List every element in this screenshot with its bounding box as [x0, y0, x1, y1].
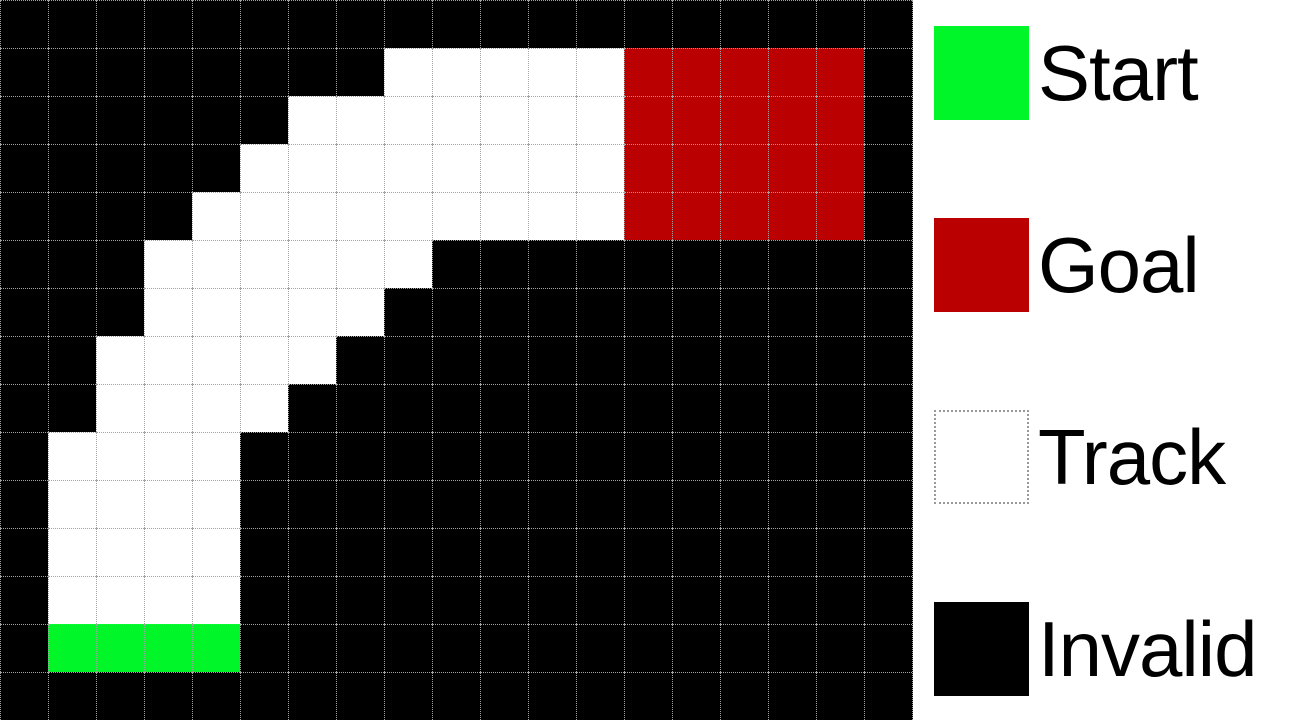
- grid-cell-invalid: [96, 240, 144, 288]
- grid-cell-invalid: [336, 336, 384, 384]
- grid-cell-invalid: [720, 240, 768, 288]
- grid-cell-track: [48, 480, 96, 528]
- grid-cell-invalid: [528, 288, 576, 336]
- grid-cell-invalid: [576, 624, 624, 672]
- grid-cell-invalid: [432, 528, 480, 576]
- grid-cell-invalid: [576, 384, 624, 432]
- grid-cell-track: [384, 48, 432, 96]
- grid-cell-goal: [768, 48, 816, 96]
- grid-cell-invalid: [816, 240, 864, 288]
- grid-cell-goal: [816, 192, 864, 240]
- grid-cell-goal: [672, 48, 720, 96]
- grid-cell-track: [240, 240, 288, 288]
- grid-cell-track: [480, 96, 528, 144]
- grid-cell-invalid: [576, 672, 624, 720]
- grid-cell-invalid: [288, 48, 336, 96]
- grid-cell-invalid: [768, 240, 816, 288]
- grid-cell-invalid: [480, 288, 528, 336]
- grid-cell-invalid: [480, 0, 528, 48]
- grid-cell-invalid: [432, 288, 480, 336]
- grid-cell-invalid: [624, 624, 672, 672]
- grid-cell-invalid: [672, 576, 720, 624]
- grid-cell-invalid: [672, 480, 720, 528]
- grid-cell-invalid: [240, 48, 288, 96]
- grid-cell-invalid: [768, 384, 816, 432]
- grid-cell-invalid: [576, 576, 624, 624]
- grid-cell-track: [288, 192, 336, 240]
- grid-cell-goal: [624, 144, 672, 192]
- grid-cell-track: [288, 144, 336, 192]
- grid-cell-invalid: [480, 624, 528, 672]
- grid-cell-invalid: [432, 480, 480, 528]
- grid-cell-invalid: [768, 624, 816, 672]
- grid-cell-track: [240, 336, 288, 384]
- grid-cell-track: [240, 288, 288, 336]
- grid-cell-track: [432, 192, 480, 240]
- grid-cell-invalid: [672, 384, 720, 432]
- grid-cell-invalid: [192, 144, 240, 192]
- grid-cell-invalid: [576, 0, 624, 48]
- grid-cell-invalid: [192, 0, 240, 48]
- goal-swatch-icon: [934, 218, 1029, 312]
- grid-cell-invalid: [432, 624, 480, 672]
- grid-cell-track: [432, 48, 480, 96]
- grid-cell-invalid: [240, 672, 288, 720]
- grid-cell-invalid: [0, 192, 48, 240]
- grid-cell-invalid: [336, 480, 384, 528]
- grid-cell-track: [144, 432, 192, 480]
- grid-cell-invalid: [288, 528, 336, 576]
- grid-cell-invalid: [48, 192, 96, 240]
- grid-cell-invalid: [576, 288, 624, 336]
- grid-cell-invalid: [672, 288, 720, 336]
- legend-label-goal: Goal: [1038, 226, 1199, 304]
- grid-cell-invalid: [288, 384, 336, 432]
- grid-cell-invalid: [864, 48, 912, 96]
- grid-cell-track: [144, 384, 192, 432]
- grid-cell-track: [96, 432, 144, 480]
- grid-cell-track: [240, 144, 288, 192]
- grid-cell-invalid: [192, 48, 240, 96]
- grid-cell-invalid: [864, 144, 912, 192]
- grid-cell-invalid: [816, 480, 864, 528]
- grid-cell-invalid: [768, 576, 816, 624]
- legend-label-invalid: Invalid: [1038, 610, 1256, 688]
- grid-cell-invalid: [240, 480, 288, 528]
- grid-cell-track: [576, 192, 624, 240]
- grid-cell-invalid: [576, 336, 624, 384]
- grid-cell-track: [144, 336, 192, 384]
- grid-cell-invalid: [240, 432, 288, 480]
- grid-cell-goal: [720, 96, 768, 144]
- grid-cell-invalid: [0, 0, 48, 48]
- grid-cell-goal: [720, 48, 768, 96]
- legend-item-track: Track: [934, 410, 1225, 504]
- grid-cell-invalid: [720, 432, 768, 480]
- grid-cell-invalid: [336, 624, 384, 672]
- grid-cell-goal: [768, 96, 816, 144]
- grid-cell-invalid: [864, 288, 912, 336]
- grid-cell-invalid: [48, 144, 96, 192]
- grid-cell-goal: [672, 192, 720, 240]
- grid-cell-track: [528, 144, 576, 192]
- grid-cell-track: [480, 144, 528, 192]
- grid-cell-goal: [816, 48, 864, 96]
- grid-cell-invalid: [672, 432, 720, 480]
- grid-cell-track: [384, 96, 432, 144]
- grid-cell-track: [576, 48, 624, 96]
- grid-cell-invalid: [48, 384, 96, 432]
- legend-item-start: Start: [934, 26, 1198, 120]
- grid-cell-invalid: [432, 432, 480, 480]
- grid-cell-track: [336, 240, 384, 288]
- grid-cell-invalid: [384, 0, 432, 48]
- grid-cell-invalid: [480, 240, 528, 288]
- grid-cell-invalid: [864, 528, 912, 576]
- grid-cell-track: [288, 336, 336, 384]
- grid-cell-invalid: [528, 672, 576, 720]
- grid-cell-invalid: [96, 48, 144, 96]
- grid-cell-invalid: [48, 336, 96, 384]
- grid-cell-invalid: [144, 144, 192, 192]
- grid-cell-invalid: [864, 384, 912, 432]
- grid-cell-track: [240, 384, 288, 432]
- grid-cell-track: [96, 384, 144, 432]
- grid-cell-invalid: [48, 96, 96, 144]
- grid-cell-invalid: [624, 0, 672, 48]
- grid-cell-invalid: [768, 480, 816, 528]
- grid-cell-invalid: [480, 528, 528, 576]
- grid-cell-track: [576, 144, 624, 192]
- grid-cell-invalid: [768, 288, 816, 336]
- grid-cell-invalid: [384, 336, 432, 384]
- legend: Start Goal Track Invalid: [913, 0, 1302, 720]
- grid-cell-invalid: [0, 528, 48, 576]
- grid-cell-invalid: [288, 672, 336, 720]
- grid-cell-invalid: [816, 624, 864, 672]
- grid-cell-invalid: [864, 336, 912, 384]
- grid-cell-invalid: [720, 336, 768, 384]
- grid-cell-track: [480, 192, 528, 240]
- grid-cell-track: [528, 96, 576, 144]
- grid-cell-invalid: [0, 96, 48, 144]
- grid-cell-track: [48, 432, 96, 480]
- grid-cell-invalid: [816, 336, 864, 384]
- grid-cell-invalid: [336, 48, 384, 96]
- grid-cell-invalid: [480, 384, 528, 432]
- grid-cell-track: [96, 336, 144, 384]
- grid-cell-invalid: [816, 384, 864, 432]
- grid-cell-invalid: [144, 192, 192, 240]
- grid-cell-invalid: [720, 480, 768, 528]
- grid-cell-invalid: [864, 624, 912, 672]
- grid-cell-invalid: [48, 240, 96, 288]
- grid-cell-invalid: [432, 0, 480, 48]
- grid-cell-invalid: [144, 96, 192, 144]
- grid-cell-track: [384, 144, 432, 192]
- grid-cell-invalid: [480, 576, 528, 624]
- grid-cell-invalid: [864, 192, 912, 240]
- grid-cell-invalid: [0, 384, 48, 432]
- grid-cell-invalid: [720, 528, 768, 576]
- grid-cell-invalid: [720, 384, 768, 432]
- grid-cell-invalid: [384, 288, 432, 336]
- grid-cell-invalid: [672, 672, 720, 720]
- grid-cell-invalid: [528, 0, 576, 48]
- grid-cell-invalid: [0, 48, 48, 96]
- grid-cell-goal: [768, 144, 816, 192]
- legend-item-goal: Goal: [934, 218, 1199, 312]
- grid-cell-track: [144, 528, 192, 576]
- grid-cell-track: [96, 480, 144, 528]
- grid-cell-invalid: [624, 480, 672, 528]
- grid-cell-invalid: [624, 576, 672, 624]
- grid-cell-invalid: [624, 528, 672, 576]
- grid-cell-invalid: [768, 0, 816, 48]
- grid-cell-track: [432, 96, 480, 144]
- grid-cell-track: [288, 288, 336, 336]
- grid-cell-invalid: [192, 96, 240, 144]
- grid-cell-invalid: [528, 240, 576, 288]
- grid-cell-invalid: [720, 672, 768, 720]
- invalid-swatch-icon: [934, 602, 1029, 696]
- grid-cell-invalid: [288, 480, 336, 528]
- grid-cell-invalid: [672, 336, 720, 384]
- racetrack-grid: [0, 0, 913, 720]
- grid-cell-goal: [768, 192, 816, 240]
- grid-cell-invalid: [0, 144, 48, 192]
- grid-cell-invalid: [0, 624, 48, 672]
- grid-cell-invalid: [48, 672, 96, 720]
- grid-cell-track: [192, 336, 240, 384]
- grid-cell-invalid: [0, 336, 48, 384]
- grid-cell-invalid: [240, 576, 288, 624]
- grid-cell-invalid: [624, 384, 672, 432]
- grid-cell-invalid: [816, 288, 864, 336]
- grid-cell-goal: [624, 192, 672, 240]
- grid-cell-invalid: [96, 288, 144, 336]
- grid-cell-invalid: [864, 480, 912, 528]
- grid-cell-track: [288, 240, 336, 288]
- grid-cell-invalid: [672, 0, 720, 48]
- grid-cell-invalid: [384, 672, 432, 720]
- grid-cell-invalid: [48, 288, 96, 336]
- grid-cell-goal: [720, 144, 768, 192]
- grid-cell-invalid: [288, 576, 336, 624]
- grid-cell-invalid: [96, 192, 144, 240]
- grid-cell-invalid: [816, 576, 864, 624]
- grid-cell-invalid: [864, 0, 912, 48]
- grid-cell-track: [384, 192, 432, 240]
- grid-cell-track: [480, 48, 528, 96]
- grid-cell-invalid: [528, 624, 576, 672]
- grid-cell-invalid: [0, 288, 48, 336]
- grid-cell-invalid: [0, 432, 48, 480]
- grid-cell-track: [192, 288, 240, 336]
- grid-cell-track: [48, 576, 96, 624]
- grid-cell-start: [48, 624, 96, 672]
- grid-cell-invalid: [480, 336, 528, 384]
- grid-cell-invalid: [96, 96, 144, 144]
- grid-cell-invalid: [864, 240, 912, 288]
- grid-cell-invalid: [672, 624, 720, 672]
- grid-cell-invalid: [528, 576, 576, 624]
- grid-cell-invalid: [240, 96, 288, 144]
- grid-cell-invalid: [384, 576, 432, 624]
- racetrack-figure: Start Goal Track Invalid: [0, 0, 1302, 720]
- grid-cell-invalid: [384, 528, 432, 576]
- grid-cell-invalid: [384, 384, 432, 432]
- grid-cell-track: [384, 240, 432, 288]
- grid-cell-invalid: [288, 432, 336, 480]
- grid-cell-invalid: [864, 96, 912, 144]
- grid-cell-invalid: [624, 240, 672, 288]
- grid-cell-start: [96, 624, 144, 672]
- grid-cell-track: [192, 192, 240, 240]
- grid-cell-invalid: [768, 336, 816, 384]
- grid-cell-invalid: [0, 576, 48, 624]
- grid-cell-invalid: [624, 672, 672, 720]
- grid-cell-track: [96, 528, 144, 576]
- grid-cell-invalid: [336, 576, 384, 624]
- grid-cell-track: [144, 288, 192, 336]
- grid-cell-goal: [816, 144, 864, 192]
- grid-cell-invalid: [720, 0, 768, 48]
- grid-cell-invalid: [432, 384, 480, 432]
- grid-cell-invalid: [144, 0, 192, 48]
- grid-cell-invalid: [576, 240, 624, 288]
- grid-cell-invalid: [816, 0, 864, 48]
- grid-cell-invalid: [432, 336, 480, 384]
- grid-cell-track: [144, 576, 192, 624]
- legend-item-invalid: Invalid: [934, 602, 1256, 696]
- grid-cell-invalid: [96, 144, 144, 192]
- grid-cell-invalid: [336, 672, 384, 720]
- grid-cell-track: [432, 144, 480, 192]
- start-swatch-icon: [934, 26, 1029, 120]
- grid-cell-invalid: [528, 480, 576, 528]
- grid-cell-invalid: [336, 432, 384, 480]
- grid-cell-invalid: [144, 48, 192, 96]
- grid-cell-invalid: [384, 624, 432, 672]
- grid-cell-invalid: [432, 240, 480, 288]
- grid-cell-invalid: [576, 480, 624, 528]
- legend-label-track: Track: [1038, 418, 1225, 496]
- grid-cell-invalid: [720, 288, 768, 336]
- grid-cell-invalid: [48, 0, 96, 48]
- grid-cell-invalid: [768, 528, 816, 576]
- grid-cell-track: [528, 48, 576, 96]
- grid-cell-invalid: [720, 576, 768, 624]
- grid-cell-invalid: [432, 576, 480, 624]
- grid-cell-invalid: [240, 0, 288, 48]
- grid-cell-invalid: [816, 672, 864, 720]
- grid-cell-invalid: [384, 480, 432, 528]
- grid-cell-invalid: [432, 672, 480, 720]
- grid-cell-goal: [624, 48, 672, 96]
- grid-cell-invalid: [48, 48, 96, 96]
- grid-cell-invalid: [336, 0, 384, 48]
- grid-cell-goal: [672, 96, 720, 144]
- grid-cell-invalid: [816, 528, 864, 576]
- grid-cell-invalid: [528, 432, 576, 480]
- grid-cell-invalid: [336, 384, 384, 432]
- grid-cell-invalid: [576, 528, 624, 576]
- grid-cell-invalid: [384, 432, 432, 480]
- grid-cell-invalid: [576, 432, 624, 480]
- grid-cell-invalid: [192, 672, 240, 720]
- grid-cell-track: [576, 96, 624, 144]
- grid-cell-track: [144, 240, 192, 288]
- grid-cell-track: [192, 576, 240, 624]
- grid-cell-track: [192, 432, 240, 480]
- grid-cell-track: [192, 480, 240, 528]
- grid-cell-track: [192, 240, 240, 288]
- grid-cell-invalid: [0, 240, 48, 288]
- grid-cell-invalid: [480, 432, 528, 480]
- grid-cell-track: [288, 96, 336, 144]
- grid-cell-invalid: [720, 624, 768, 672]
- grid-cell-invalid: [768, 432, 816, 480]
- grid-cell-goal: [720, 192, 768, 240]
- grid-cell-invalid: [144, 672, 192, 720]
- grid-cell-invalid: [624, 336, 672, 384]
- grid-cell-invalid: [528, 384, 576, 432]
- grid-cell-invalid: [0, 672, 48, 720]
- grid-cell-invalid: [0, 480, 48, 528]
- grid-cell-track: [192, 384, 240, 432]
- grid-cell-invalid: [480, 672, 528, 720]
- grid-cell-invalid: [624, 432, 672, 480]
- grid-cell-invalid: [624, 288, 672, 336]
- grid-cell-invalid: [480, 480, 528, 528]
- grid-cell-invalid: [864, 576, 912, 624]
- grid-cell-invalid: [240, 624, 288, 672]
- grid-cell-track: [336, 192, 384, 240]
- track-swatch-icon: [934, 410, 1029, 504]
- grid-cell-track: [96, 576, 144, 624]
- grid-cell-invalid: [864, 672, 912, 720]
- grid-cell-invalid: [96, 0, 144, 48]
- grid-cell-invalid: [672, 528, 720, 576]
- grid-cell-track: [528, 192, 576, 240]
- grid-cell-invalid: [768, 672, 816, 720]
- grid-cell-invalid: [240, 528, 288, 576]
- grid-cell-invalid: [336, 528, 384, 576]
- grid-cell-track: [336, 144, 384, 192]
- grid-cell-track: [48, 528, 96, 576]
- grid-cell-invalid: [528, 528, 576, 576]
- grid-cell-invalid: [288, 624, 336, 672]
- grid-cell-track: [336, 288, 384, 336]
- grid-cell-goal: [672, 144, 720, 192]
- grid-cell-invalid: [528, 336, 576, 384]
- grid-cell-invalid: [96, 672, 144, 720]
- grid-cell-start: [144, 624, 192, 672]
- grid-cell-invalid: [672, 240, 720, 288]
- grid-cell-track: [144, 480, 192, 528]
- grid-cell-track: [240, 192, 288, 240]
- legend-label-start: Start: [1038, 34, 1198, 112]
- grid-cell-invalid: [864, 432, 912, 480]
- grid-cell-goal: [624, 96, 672, 144]
- grid-cell-track: [192, 528, 240, 576]
- grid-cell-start: [192, 624, 240, 672]
- grid-cell-track: [336, 96, 384, 144]
- grid-cell-goal: [816, 96, 864, 144]
- grid-cell-invalid: [816, 432, 864, 480]
- grid-cell-invalid: [288, 0, 336, 48]
